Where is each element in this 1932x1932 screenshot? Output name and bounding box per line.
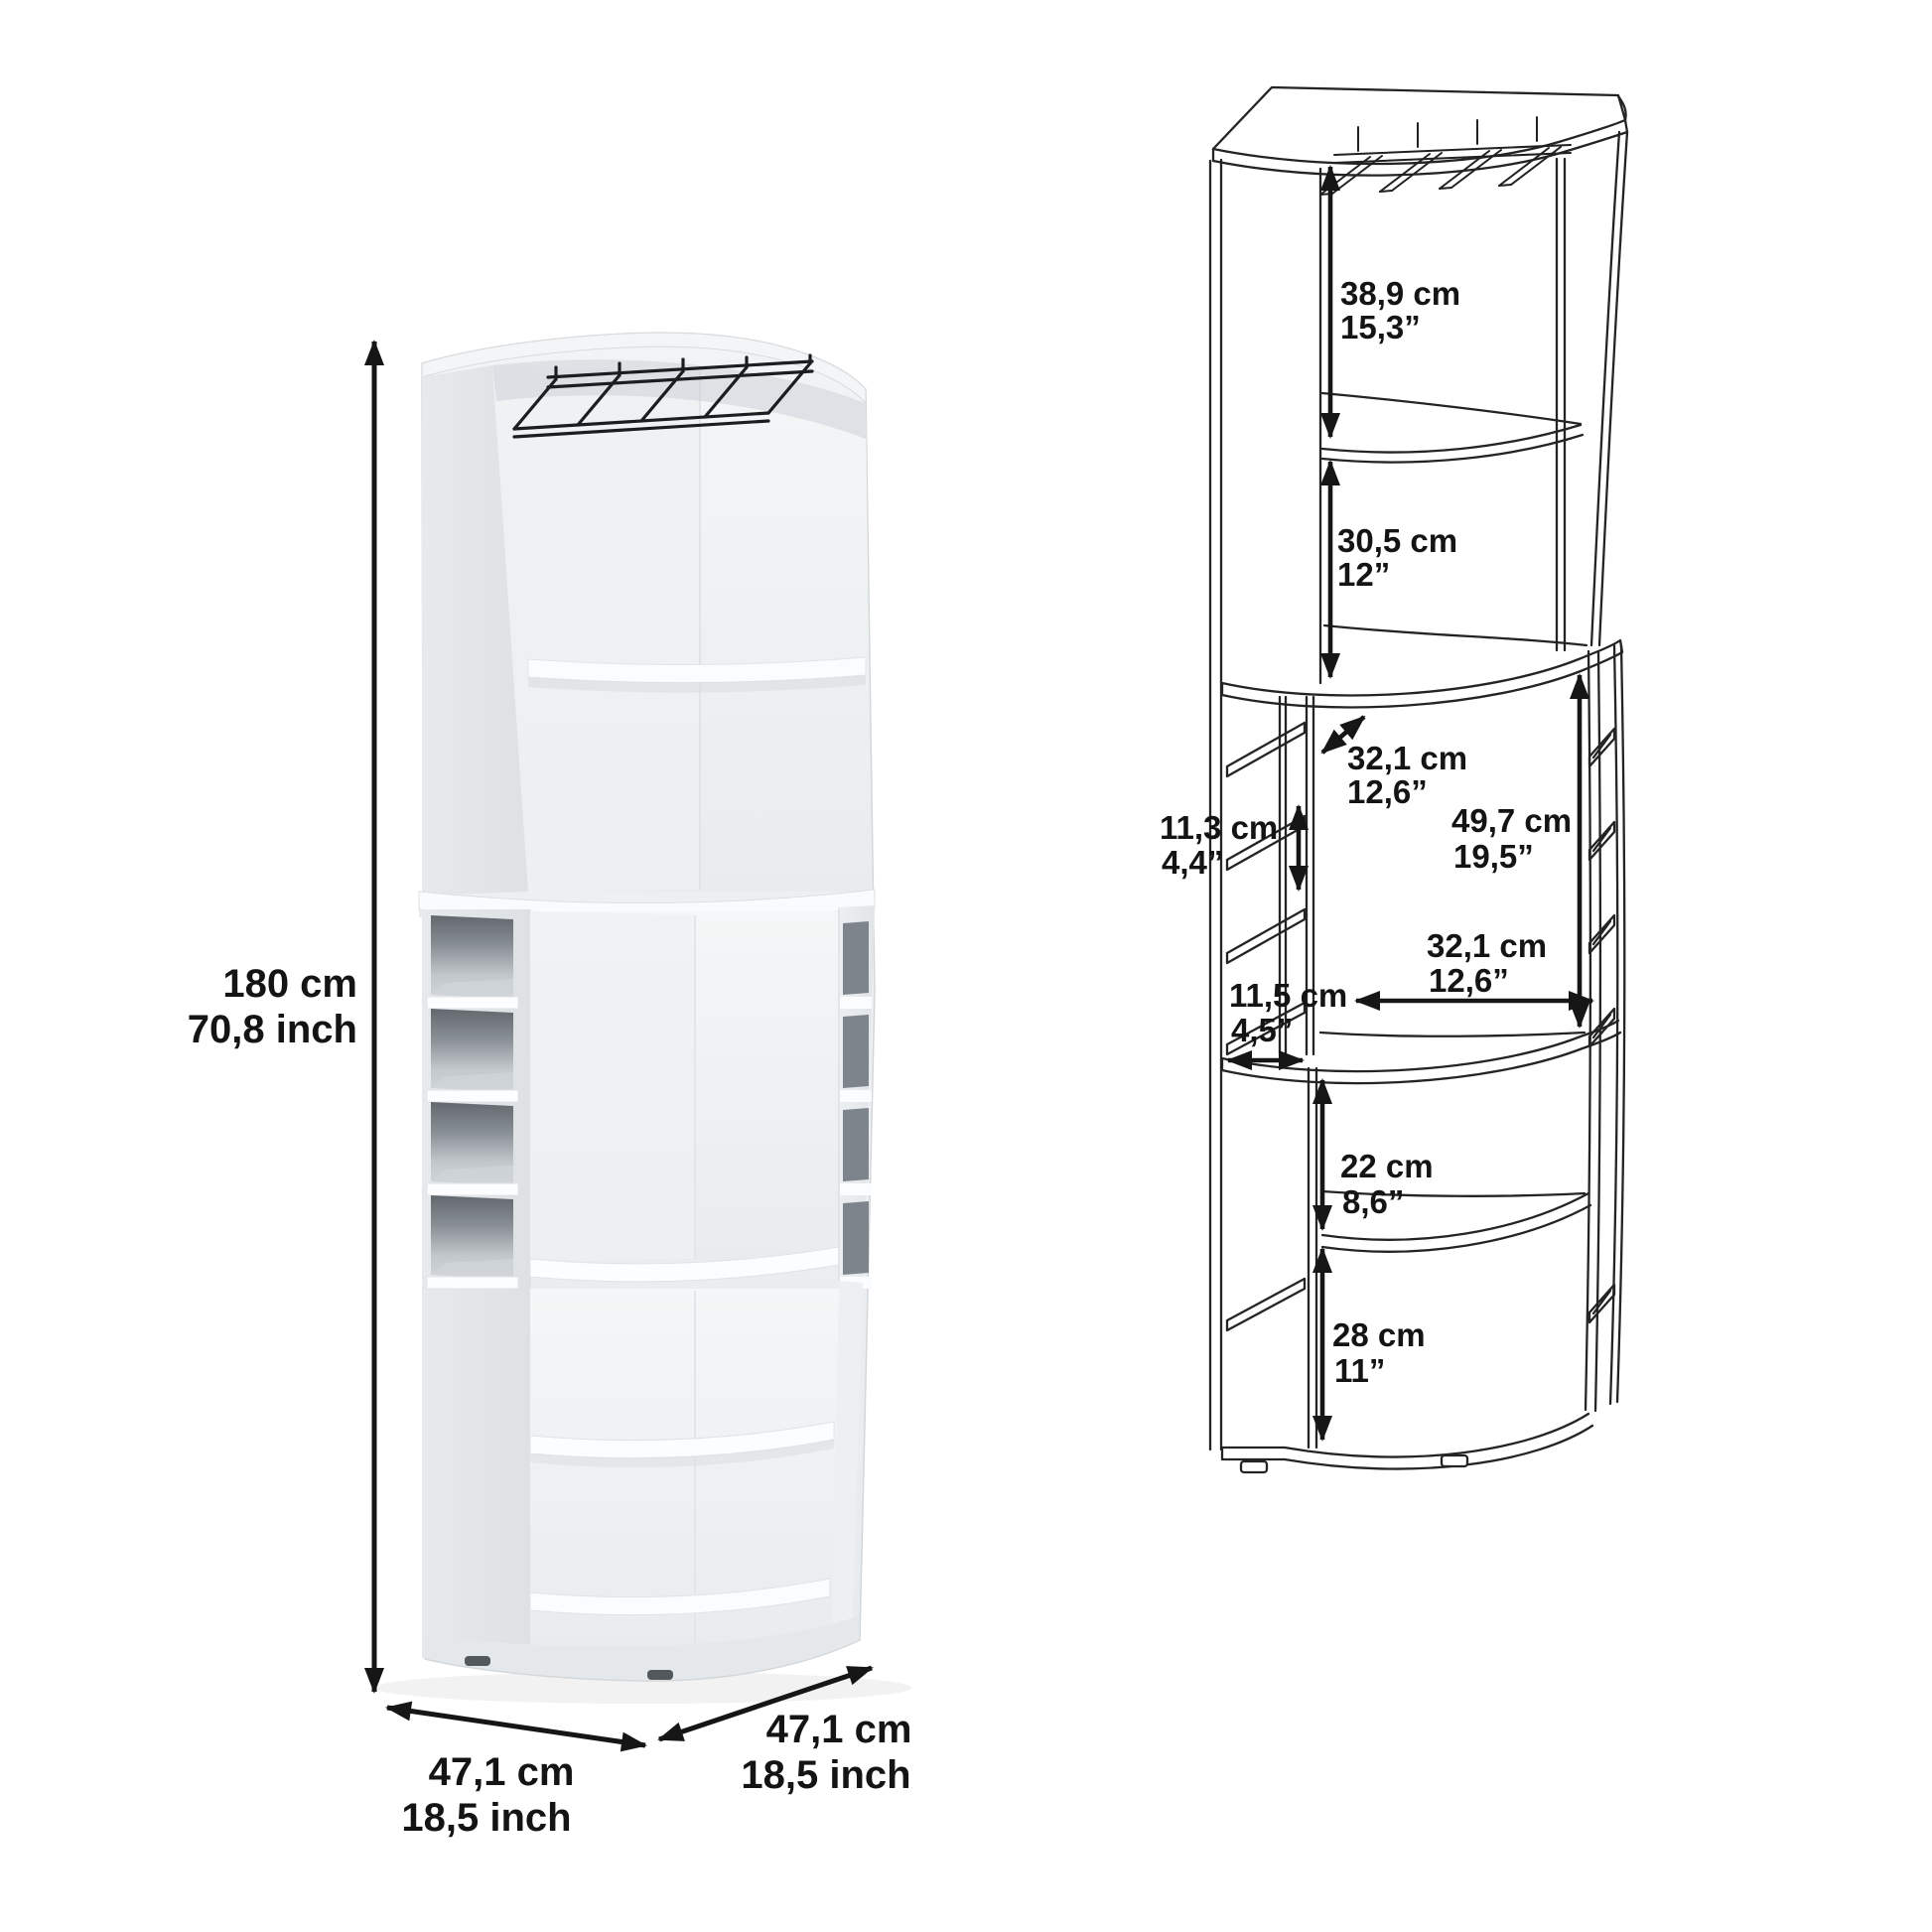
right-depth-cm-label: 47,1 cm [766,1708,912,1751]
top-opening-inch-label: 15,3” [1340,309,1421,345]
second-opening-height-dimension: 30,5 cm 12” [1330,462,1457,677]
middle-depth-inch-label: 12,6” [1347,773,1428,810]
diagram-right-edge [1586,645,1624,1411]
lower-opening-inch-label: 8,6” [1342,1183,1404,1220]
overall-height-dimension: 180 cm 70,8 inch [188,342,374,1692]
side-slot-band-2 [840,1090,872,1102]
wine-cubby-4 [431,1195,513,1279]
wine-cubby-1 [431,915,513,999]
middle-back-left-wall [530,911,695,1261]
foot-right [647,1670,673,1680]
diagram-foot-right [1442,1455,1467,1466]
bottom-opening-cm-label: 28 cm [1332,1316,1426,1353]
cubby-shelf-band-1 [427,997,518,1009]
second-opening-inch-label: 12” [1337,556,1390,593]
middle-opening-cm-label: 49,7 cm [1451,802,1572,839]
side-slot-band-3 [840,1183,872,1195]
side-slot-band-1 [840,997,872,1009]
diagram-lower-side-shelf [1227,1279,1305,1330]
side-cubby-width-cm-label: 11,5 cm [1229,977,1347,1014]
right-depth-inch-label: 18,5 inch [741,1753,910,1797]
dimension-sheet-canvas: 180 cm 70,8 inch 47,1 cm 18,5 inch 47,1 … [0,0,1932,1932]
wine-cubby-3 [431,1102,513,1185]
rendered-cabinet-view: 180 cm 70,8 inch 47,1 cm 18,5 inch 47,1 … [188,333,912,1840]
diagram-left-post [1210,160,1221,1449]
lower-opening-cm-label: 22 cm [1340,1148,1434,1184]
side-cubby-width-inch-label: 4,5” [1231,1012,1293,1048]
side-cubby-width-dimension: 11,5 cm 4,5” [1228,977,1347,1060]
middle-depth-cm-label: 32,1 cm [1347,740,1467,776]
side-slot-3 [843,1108,869,1181]
middle-opening-inch-label: 19,5” [1453,838,1534,875]
middle-width-cm-label: 32,1 cm [1427,927,1547,964]
diagram-lower-divider [1309,1068,1316,1448]
diagram-base [1222,1414,1592,1472]
side-slot-2 [843,1015,869,1088]
bottom-opening-height-dimension: 28 cm 11” [1322,1249,1426,1440]
top-opening-cm-label: 38,9 cm [1340,275,1460,312]
side-cubby-height-dimension: 11,3 cm 4,4” [1160,806,1299,890]
left-depth-dimension: 47,1 cm 18,5 inch [387,1708,645,1840]
dimension-diagram-view: 38,9 cm 15,3” 30,5 cm 12” 32,1 cm 12,6” … [1160,87,1627,1472]
hutch-back-left-wall [492,365,700,892]
cubby-shelf-band-2 [427,1090,518,1102]
left-depth-cm-label: 47,1 cm [429,1750,575,1794]
bottom-opening-inch-label: 11” [1334,1352,1385,1389]
overall-height-inch-label: 70,8 inch [188,1008,357,1051]
second-opening-cm-label: 30,5 cm [1337,522,1457,559]
lower-opening-height-dimension: 22 cm 8,6” [1322,1080,1434,1229]
middle-width-inch-label: 12,6” [1429,962,1509,999]
left-depth-inch-label: 18,5 inch [401,1796,571,1840]
diagram-hutch-right-edge [1557,132,1627,650]
side-cubby-height-inch-label: 4,4” [1162,844,1223,881]
diagram-counter [1222,625,1622,707]
side-slot-1 [843,921,869,995]
wine-cubby-2 [431,1009,513,1092]
middle-depth-dimension: 32,1 cm 12,6” [1322,717,1467,810]
cubby-shelf-band-3 [427,1183,518,1195]
diagram-foot-left [1241,1461,1267,1472]
foot-left [465,1656,490,1666]
middle-width-dimension: 32,1 cm 12,6” [1356,927,1592,1001]
product-dimension-sheet: 180 cm 70,8 inch 47,1 cm 18,5 inch 47,1 … [0,0,1932,1932]
side-slot-4 [843,1201,869,1275]
diagram-shelf-1 [1322,393,1583,463]
side-cubby-height-cm-label: 11,3 cm [1160,809,1278,846]
overall-height-cm-label: 180 cm [222,962,357,1006]
cubby-shelf-band-4 [427,1277,518,1289]
